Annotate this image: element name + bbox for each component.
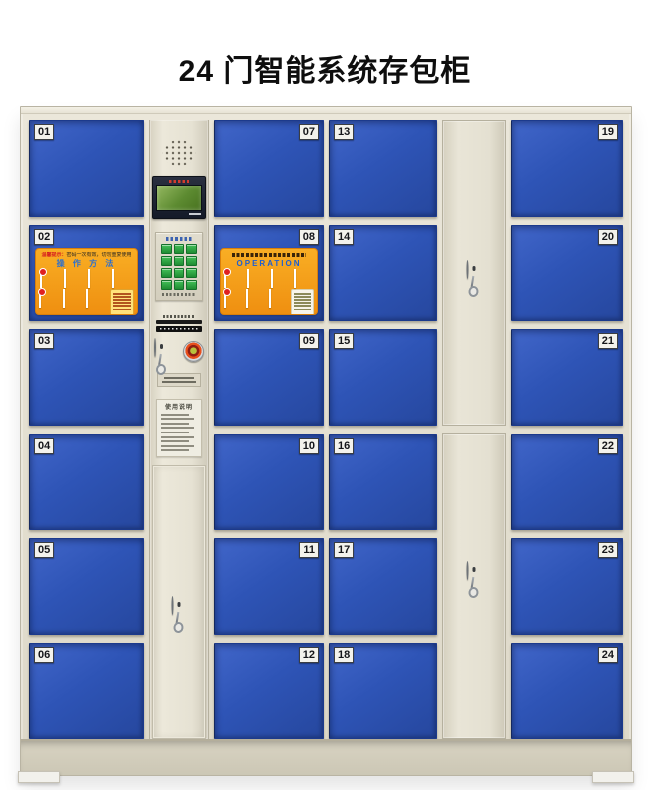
- keypad-footer-text: [162, 293, 196, 296]
- step-photo: [86, 289, 88, 308]
- control-column-lower-door: [152, 465, 206, 739]
- keypad-button: [161, 268, 172, 278]
- lock-barrel: [467, 260, 469, 279]
- sticker-notice-text: [232, 253, 306, 257]
- locker-door-04: 04: [29, 434, 144, 531]
- door-number-plate: 12: [299, 647, 319, 663]
- sticker-note-box: [291, 289, 314, 316]
- keypad-button: [186, 244, 197, 254]
- locker-cabinet: 01 02 温馨提示：密码一次有效，切勿重复使用 操 作 方 法: [20, 106, 632, 776]
- lock-barrel: [172, 596, 174, 615]
- locker-door-14: 14: [329, 225, 437, 322]
- keypad-button: [174, 268, 185, 278]
- step-photo: [64, 269, 66, 288]
- sticker-note-box: [110, 289, 134, 316]
- sticker-step-row: [224, 290, 314, 316]
- door-number-plate: 01: [34, 124, 54, 140]
- keypad-button: [161, 256, 172, 266]
- keypad-label-text: [166, 237, 192, 241]
- step-cell: [246, 290, 265, 308]
- step-photo: [63, 289, 65, 308]
- keypad-button: [174, 280, 185, 290]
- lcd-screen: [156, 185, 202, 211]
- control-column: 使用说明: [149, 120, 209, 739]
- keypad-grid: [161, 244, 197, 290]
- door-number-plate: 17: [334, 542, 354, 558]
- cabinet-columns: 01 02 温馨提示：密码一次有效，切勿重复使用 操 作 方 法: [29, 120, 623, 739]
- step-cell: [88, 270, 109, 288]
- locker-door-16: 16: [329, 434, 437, 531]
- door-number-plate: 18: [334, 647, 354, 663]
- step-cell: [224, 290, 243, 308]
- key-lock-icon: [172, 597, 187, 631]
- barcode-slot: [156, 320, 202, 324]
- speaker-grille-icon: [162, 140, 196, 166]
- step-cell: [294, 270, 314, 288]
- door-number-plate: 10: [299, 438, 319, 454]
- sticker-notice-line: 温馨提示：密码一次有效，切勿重复使用: [39, 252, 134, 259]
- step-photo: [112, 269, 114, 288]
- locker-door-05: 05: [29, 538, 144, 635]
- door-number-plate: 15: [334, 333, 354, 349]
- door-number-plate: 02: [34, 229, 54, 245]
- door-number-plate: 20: [598, 229, 618, 245]
- keypad-button: [186, 268, 197, 278]
- lock-keyhole: [178, 602, 181, 607]
- step-cell: [224, 270, 244, 288]
- sticker-title: 操 作 方 法: [39, 259, 134, 269]
- step-cell: [247, 270, 267, 288]
- ticket-slot-module: [154, 315, 204, 334]
- master-lock-column: [442, 120, 506, 739]
- instruction-sheet-title: 使用说明: [161, 404, 197, 412]
- step-photo: [39, 289, 41, 308]
- instruction-text-line: [161, 449, 189, 451]
- door-number-plate: 04: [34, 438, 54, 454]
- lock-keyhole: [473, 266, 476, 271]
- sticker-step-row: [224, 270, 314, 288]
- door-number-plate: 23: [598, 542, 618, 558]
- door-number-plate: 16: [334, 438, 354, 454]
- display-brand-text: [189, 213, 201, 215]
- locker-door-23: 23: [511, 538, 623, 635]
- cabinet-base: [21, 739, 631, 775]
- locker-door-17: 17: [329, 538, 437, 635]
- sticker-title: OPERATION: [224, 259, 314, 269]
- sticker-notice-text: 温馨提示：密码一次有效，切勿重复使用: [41, 252, 131, 259]
- door-number-plate: 19: [598, 124, 618, 140]
- sticker-step-grid: [224, 270, 314, 316]
- display-label-text: [169, 180, 189, 183]
- keypad-button: [186, 280, 197, 290]
- locker-door-15: 15: [329, 329, 437, 426]
- door-column-2: 07 08 OPERATION: [214, 120, 324, 739]
- door-number-plate: 09: [299, 333, 319, 349]
- locker-door-13: 13: [329, 120, 437, 217]
- key-lock-icon: [154, 339, 169, 373]
- step-cell: [40, 270, 61, 288]
- step-photo: [294, 269, 296, 288]
- lcd-display-module: [152, 176, 206, 219]
- instruction-sticker-cn: 温馨提示：密码一次有效，切勿重复使用 操 作 方 法: [35, 248, 138, 316]
- locker-door-22: 22: [511, 434, 623, 531]
- door-number-plate: 06: [34, 647, 54, 663]
- locker-door-24: 24: [511, 643, 623, 740]
- sticker-step-row: [39, 290, 134, 316]
- locker-door-07: 07: [214, 120, 324, 217]
- cabinet-foot-right: [592, 771, 634, 783]
- locker-door-12: 12: [214, 643, 324, 740]
- locker-door-02: 02 温馨提示：密码一次有效，切勿重复使用 操 作 方 法: [29, 225, 144, 322]
- step-cell: [112, 270, 133, 288]
- keypad-button: [174, 244, 185, 254]
- step-photo: [224, 289, 226, 308]
- door-number-plate: 24: [598, 647, 618, 663]
- door-number-plate: 21: [598, 333, 618, 349]
- lock-barrel: [154, 338, 156, 357]
- step-photo: [271, 269, 273, 288]
- instruction-text-line: [161, 445, 194, 447]
- hanging-key-head: [468, 586, 480, 598]
- keypad-button: [161, 280, 172, 290]
- cabinet-top-edge: [21, 107, 631, 114]
- instruction-text-line: [161, 436, 194, 438]
- keypad-button: [174, 256, 185, 266]
- sticker-notice-line: [224, 252, 314, 259]
- door-number-plate: 05: [34, 542, 54, 558]
- product-photo: 24 门智能系统存包柜 01 02 温馨提示：密码一次有效，切勿重复使用 操 作…: [0, 0, 650, 790]
- locker-door-08: 08 OPERATION: [214, 225, 324, 322]
- locker-door-10: 10: [214, 434, 324, 531]
- step-photo: [224, 269, 226, 288]
- door-number-plate: 11: [299, 542, 319, 558]
- sticker-step-grid: [39, 270, 134, 316]
- master-panel-lower: [442, 433, 506, 739]
- step-cell: [64, 270, 85, 288]
- locker-door-09: 09: [214, 329, 324, 426]
- page-title: 24 门智能系统存包柜: [0, 46, 650, 90]
- master-panel-upper: [442, 120, 506, 426]
- door-number-plate: 13: [334, 124, 354, 140]
- step-cell: [86, 290, 107, 308]
- instruction-text-line: [161, 423, 189, 425]
- locker-door-03: 03: [29, 329, 144, 426]
- keypad-button: [186, 256, 197, 266]
- door-column-4: 19 20 21 22 23 24: [511, 120, 623, 739]
- lock-and-button-row: [154, 339, 204, 371]
- step-photo: [269, 289, 271, 308]
- step-photo: [247, 269, 249, 288]
- slot-label-text: [163, 315, 195, 318]
- door-number-plate: 22: [598, 438, 618, 454]
- lock-barrel: [467, 561, 469, 580]
- key-lock-icon: [467, 562, 482, 596]
- instruction-text-line: [161, 440, 189, 442]
- locker-door-18: 18: [329, 643, 437, 740]
- instruction-sticker-en: OPERATION: [220, 248, 318, 316]
- keypad-button: [161, 244, 172, 254]
- service-label: [157, 373, 201, 387]
- key-lock-icon: [467, 261, 482, 295]
- door-column-3: 13 14 15 16 17 18: [329, 120, 437, 739]
- instruction-text-line: [161, 418, 194, 420]
- door-number-plate: 14: [334, 229, 354, 245]
- step-photo: [246, 289, 248, 308]
- locker-door-19: 19: [511, 120, 623, 217]
- ticket-outlet-slot: [156, 326, 202, 332]
- cabinet-foot-left: [18, 771, 60, 783]
- step-cell: [63, 290, 84, 308]
- lock-keyhole: [160, 344, 163, 349]
- lock-keyhole: [473, 567, 476, 572]
- instruction-text-line: [161, 414, 189, 416]
- instruction-text-line: [161, 427, 194, 429]
- step-cell: [39, 290, 60, 308]
- locker-door-11: 11: [214, 538, 324, 635]
- locker-door-06: 06: [29, 643, 144, 740]
- door-number-plate: 03: [34, 333, 54, 349]
- locker-door-21: 21: [511, 329, 623, 426]
- step-photo: [88, 269, 90, 288]
- locker-door-20: 20: [511, 225, 623, 322]
- instruction-sheet: 使用说明: [156, 399, 202, 458]
- sticker-step-row: [39, 270, 134, 288]
- sticker-notice-prefix: 温馨提示：: [41, 252, 66, 258]
- hanging-key-head: [173, 621, 185, 633]
- keypad-module: [155, 232, 203, 301]
- instruction-text-line: [161, 432, 189, 434]
- hanging-key-head: [468, 285, 480, 297]
- sticker-notice-body: 密码一次有效，切勿重复使用: [67, 252, 132, 258]
- locker-door-01: 01: [29, 120, 144, 217]
- door-number-plate: 07: [299, 124, 319, 140]
- step-cell: [271, 270, 291, 288]
- emergency-button: [183, 341, 204, 362]
- step-cell: [269, 290, 288, 308]
- step-photo: [40, 269, 42, 288]
- door-column-1: 01 02 温馨提示：密码一次有效，切勿重复使用 操 作 方 法: [29, 120, 144, 739]
- door-number-plate: 08: [299, 229, 319, 245]
